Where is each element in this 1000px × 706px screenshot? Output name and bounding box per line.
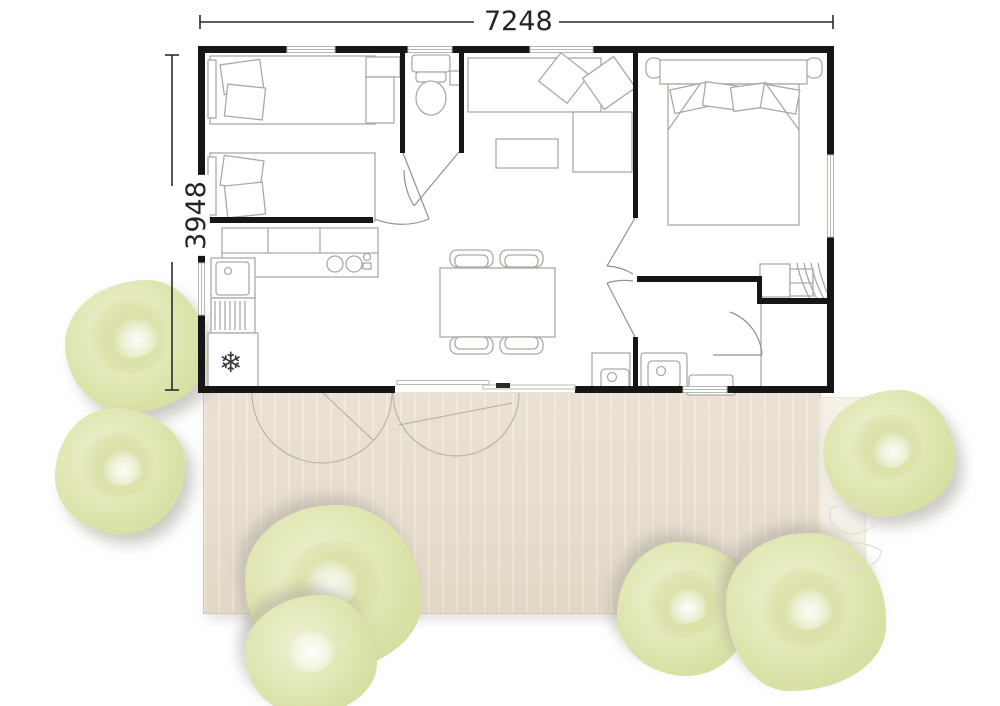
furniture-layer — [208, 53, 830, 395]
window-bedroom1-top — [287, 47, 335, 53]
bathroom-wardrobe — [760, 263, 830, 299]
terrace-arcs — [252, 393, 519, 463]
window-kitchen-left — [199, 263, 205, 315]
floor-plan-page: ❄ 7248 3948 — [0, 0, 1000, 706]
bathroom-door — [607, 280, 635, 337]
snowflake-icon: ❄ — [219, 346, 242, 379]
window-living-top — [530, 47, 593, 53]
wc-door — [404, 152, 459, 206]
toilet — [412, 55, 463, 115]
single-bed-top — [208, 56, 375, 124]
bedroom2-door — [607, 218, 635, 274]
nightstand-right — [806, 58, 822, 78]
sliding-bay-door — [395, 381, 575, 393]
dining-set — [440, 250, 555, 354]
window-bedroom2-right — [828, 155, 834, 237]
dimension-height-label: 3948 — [183, 175, 210, 256]
bedroom1-door — [375, 153, 429, 224]
window-bathroom-bottom — [683, 387, 727, 393]
faint-garden-sketch — [830, 505, 882, 569]
dimension-left — [165, 55, 179, 390]
bedroom1-wardrobe — [366, 57, 400, 123]
kitchen-sink — [211, 258, 255, 298]
coffee-table — [496, 139, 558, 168]
kitchen-drainer — [211, 298, 255, 333]
single-bed-bottom — [208, 153, 375, 221]
floor-plan-drawing — [0, 0, 1000, 706]
washbasin — [641, 353, 687, 390]
dimension-width-label: 7248 — [478, 8, 559, 35]
shower-door — [713, 312, 762, 355]
water-heater-cabinet — [592, 353, 630, 390]
double-bed — [646, 58, 822, 225]
window-wc-top — [408, 47, 452, 53]
door-handle — [496, 383, 510, 388]
